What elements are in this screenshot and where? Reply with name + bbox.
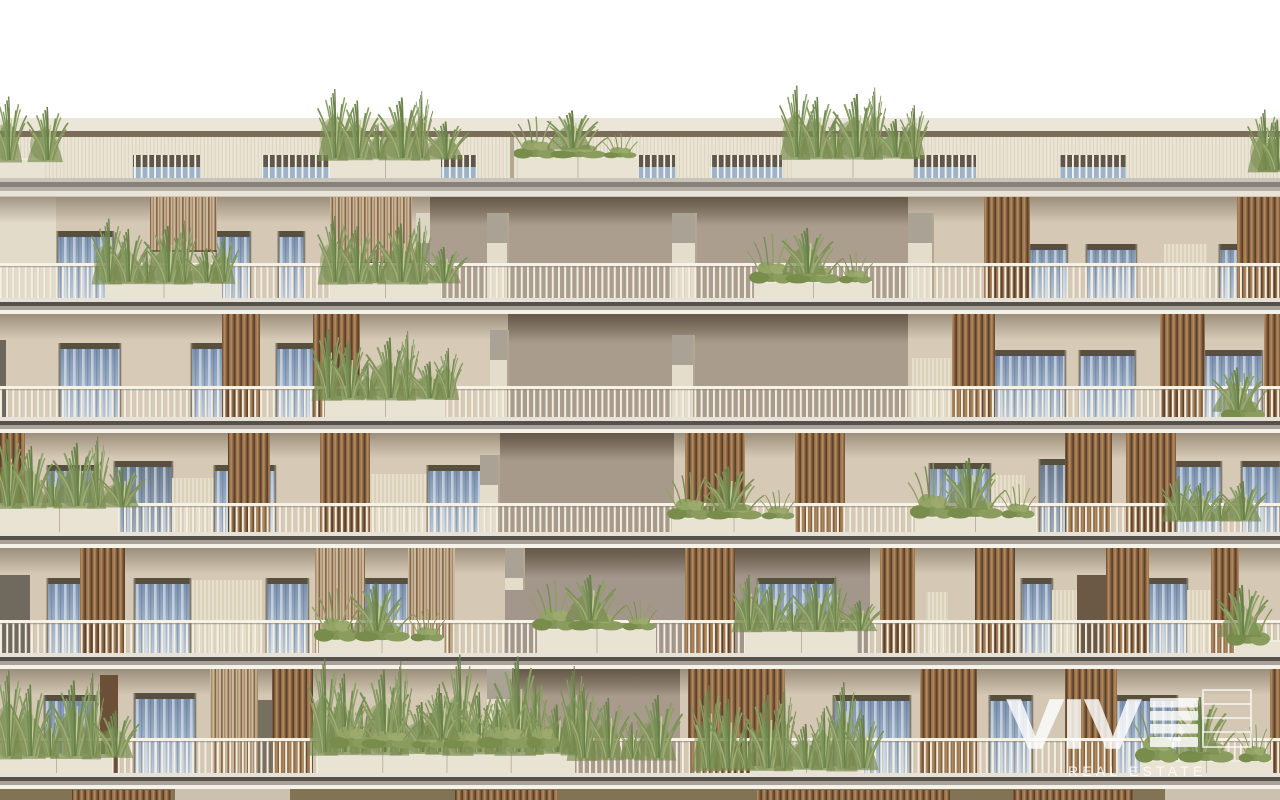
svg-text:VIV: VIV <box>1007 686 1141 763</box>
svg-text:REAL ESTATE: REAL ESTATE <box>1068 763 1207 779</box>
